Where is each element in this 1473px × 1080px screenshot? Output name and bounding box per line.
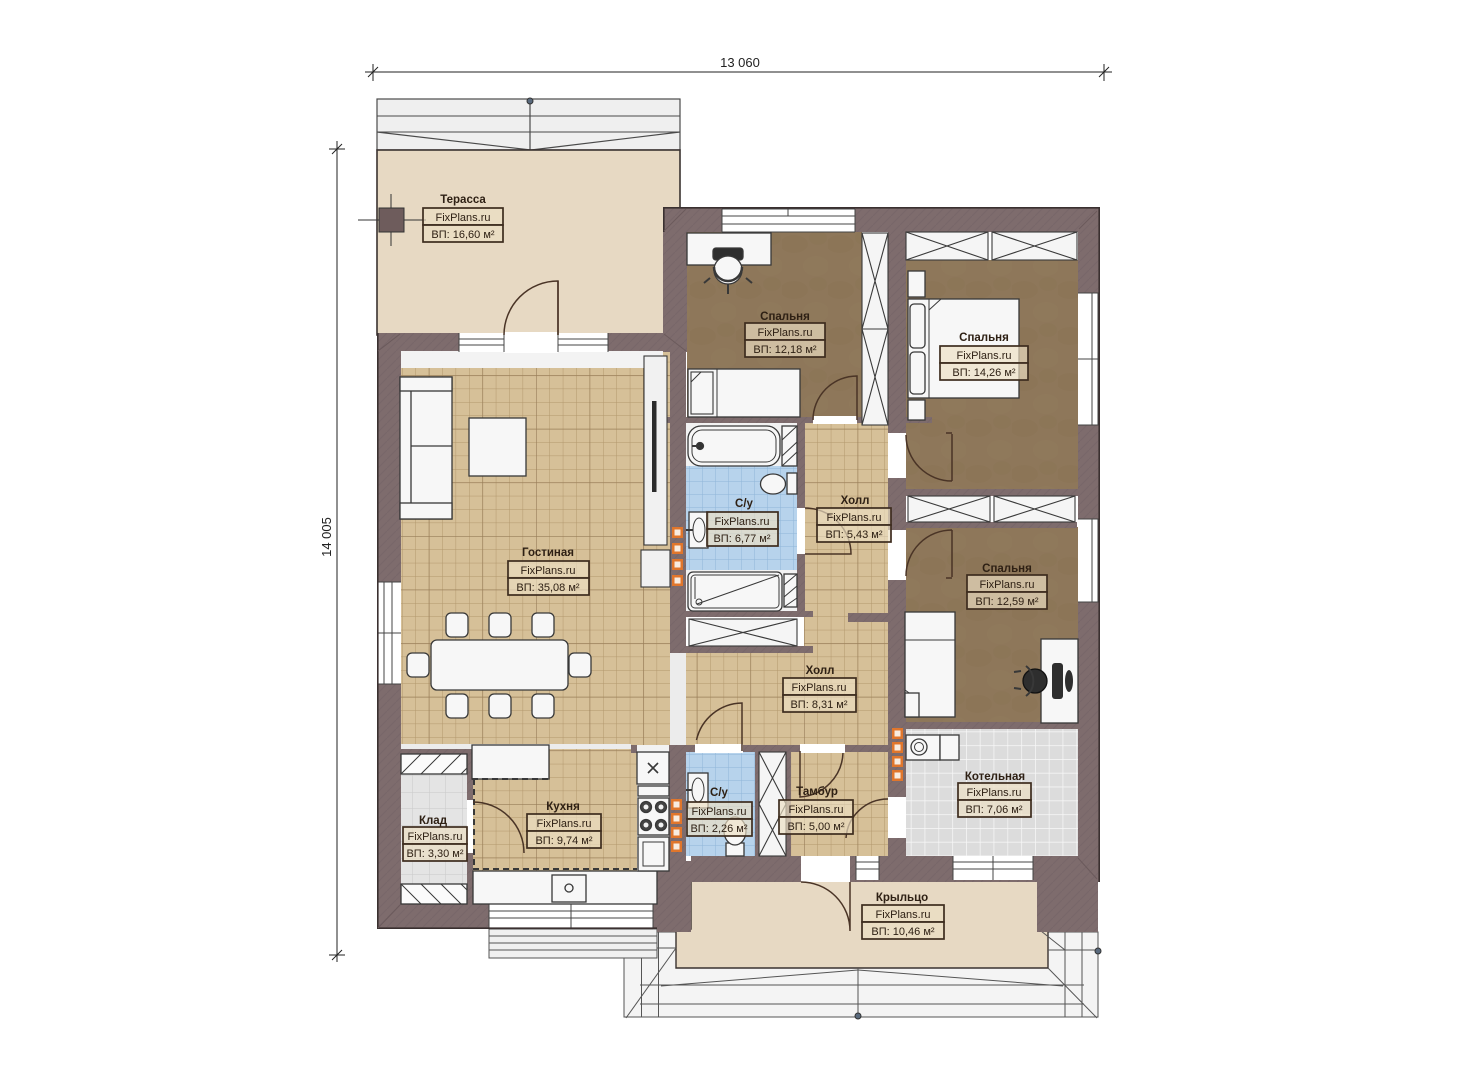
svg-text:Терасса: Терасса	[440, 194, 486, 206]
svg-text:FixPlans.ru: FixPlans.ru	[520, 565, 575, 577]
svg-text:FixPlans.ru: FixPlans.ru	[966, 787, 1021, 799]
svg-text:FixPlans.ru: FixPlans.ru	[791, 682, 846, 694]
svg-text:ВП: 12,18 м²: ВП: 12,18 м²	[753, 344, 817, 356]
svg-text:FixPlans.ru: FixPlans.ru	[691, 806, 746, 818]
svg-text:FixPlans.ru: FixPlans.ru	[875, 909, 930, 921]
svg-text:FixPlans.ru: FixPlans.ru	[407, 831, 462, 843]
svg-text:ВП: 7,06 м²: ВП: 7,06 м²	[965, 804, 1022, 816]
svg-text:ВП: 10,46 м²: ВП: 10,46 м²	[871, 926, 935, 938]
svg-text:ВП: 9,74 м²: ВП: 9,74 м²	[535, 835, 592, 847]
svg-text:С/у: С/у	[710, 787, 729, 799]
svg-text:FixPlans.ru: FixPlans.ru	[536, 818, 591, 830]
svg-text:FixPlans.ru: FixPlans.ru	[757, 327, 812, 339]
svg-text:Кухня: Кухня	[546, 801, 580, 813]
svg-text:ВП: 2,26 м²: ВП: 2,26 м²	[690, 823, 747, 835]
svg-text:Котельная: Котельная	[965, 771, 1025, 783]
svg-text:ВП: 6,77 м²: ВП: 6,77 м²	[713, 533, 770, 545]
svg-text:Тамбур: Тамбур	[796, 786, 838, 798]
svg-text:ВП: 5,43 м²: ВП: 5,43 м²	[825, 529, 882, 541]
svg-text:ВП: 16,60 м²: ВП: 16,60 м²	[431, 229, 495, 241]
svg-text:ВП: 12,59 м²: ВП: 12,59 м²	[975, 596, 1039, 608]
svg-text:С/у: С/у	[735, 498, 754, 510]
svg-text:ВП: 8,31 м²: ВП: 8,31 м²	[790, 699, 847, 711]
svg-text:FixPlans.ru: FixPlans.ru	[979, 579, 1034, 591]
svg-text:Спальня: Спальня	[760, 311, 810, 323]
svg-text:FixPlans.ru: FixPlans.ru	[788, 804, 843, 816]
svg-text:Холл: Холл	[841, 495, 870, 507]
svg-text:FixPlans.ru: FixPlans.ru	[826, 512, 881, 524]
svg-text:Крыльцо: Крыльцо	[876, 892, 928, 904]
svg-text:Клад: Клад	[419, 815, 448, 827]
svg-text:FixPlans.ru: FixPlans.ru	[714, 516, 769, 528]
svg-text:13 060: 13 060	[720, 55, 760, 70]
svg-text:Спальня: Спальня	[959, 332, 1009, 344]
svg-text:Спальня: Спальня	[982, 563, 1032, 575]
svg-text:ВП: 35,08 м²: ВП: 35,08 м²	[516, 582, 580, 594]
svg-text:Гостиная: Гостиная	[522, 547, 574, 559]
svg-text:ВП: 3,30 м²: ВП: 3,30 м²	[406, 848, 463, 860]
svg-text:FixPlans.ru: FixPlans.ru	[435, 212, 490, 224]
svg-text:ВП: 14,26 м²: ВП: 14,26 м²	[952, 367, 1016, 379]
svg-text:ВП: 5,00 м²: ВП: 5,00 м²	[787, 821, 844, 833]
svg-text:FixPlans.ru: FixPlans.ru	[956, 350, 1011, 362]
svg-text:Холл: Холл	[806, 665, 835, 677]
svg-text:14 005: 14 005	[319, 517, 334, 557]
